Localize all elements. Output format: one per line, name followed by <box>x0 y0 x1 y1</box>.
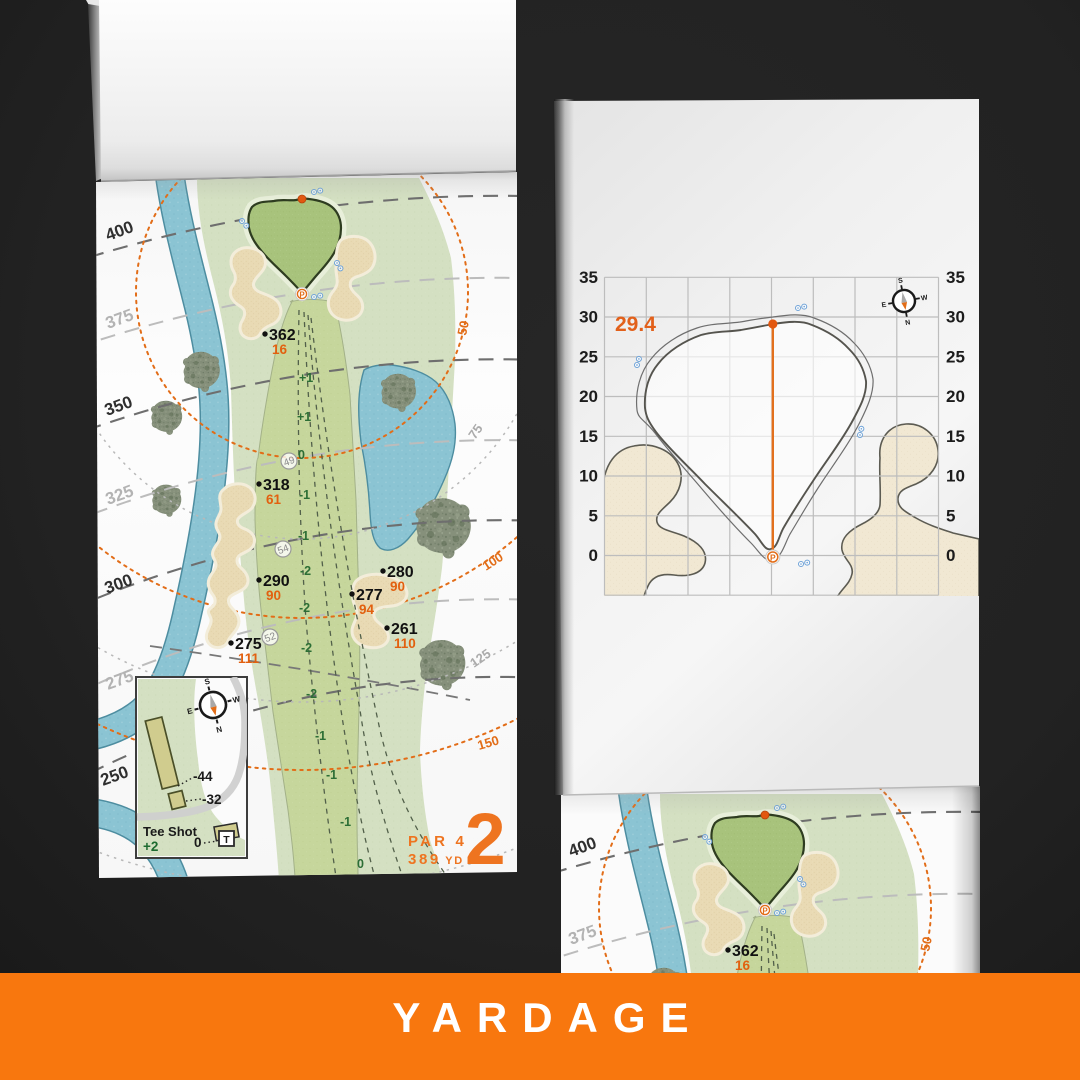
svg-text:20: 20 <box>579 387 598 406</box>
svg-text:0: 0 <box>589 546 598 565</box>
svg-text:15: 15 <box>579 427 598 446</box>
svg-text:35: 35 <box>946 268 965 287</box>
svg-text:10: 10 <box>946 467 965 486</box>
svg-text:30: 30 <box>579 308 598 327</box>
svg-text:5: 5 <box>946 507 955 526</box>
svg-text:5: 5 <box>589 507 598 526</box>
svg-text:P: P <box>770 553 776 563</box>
svg-text:YARDAGE: YARDAGE <box>392 994 703 1041</box>
svg-text:15: 15 <box>946 427 965 446</box>
svg-text:25: 25 <box>579 348 598 367</box>
svg-text:29.4: 29.4 <box>615 313 656 336</box>
svg-text:35: 35 <box>579 268 598 287</box>
svg-text:10: 10 <box>579 467 598 486</box>
svg-text:25: 25 <box>946 348 965 367</box>
svg-text:20: 20 <box>946 387 965 406</box>
svg-text:0: 0 <box>946 546 955 565</box>
svg-text:30: 30 <box>946 308 965 327</box>
